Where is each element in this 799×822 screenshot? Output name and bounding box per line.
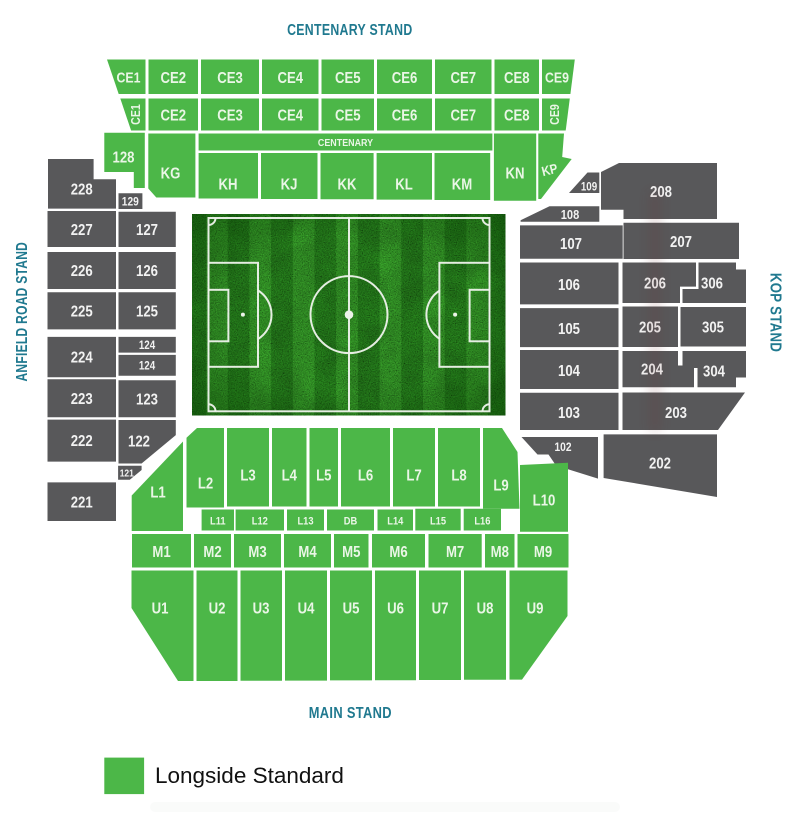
svg-text:304: 304	[703, 364, 725, 381]
svg-text:KH: KH	[218, 177, 237, 194]
svg-text:MAIN STAND: MAIN STAND	[309, 705, 392, 723]
svg-text:202: 202	[649, 456, 671, 473]
svg-text:126: 126	[136, 263, 158, 280]
svg-text:L7: L7	[406, 468, 421, 485]
svg-text:128: 128	[113, 150, 135, 167]
svg-text:124: 124	[139, 360, 155, 373]
svg-text:127: 127	[136, 222, 158, 239]
svg-text:105: 105	[558, 321, 580, 338]
svg-text:122: 122	[128, 434, 150, 451]
svg-text:L10: L10	[533, 493, 556, 510]
svg-text:CE8: CE8	[504, 70, 530, 87]
svg-text:228: 228	[71, 182, 93, 199]
svg-text:CENTENARY: CENTENARY	[318, 137, 374, 149]
svg-text:CE2: CE2	[160, 70, 186, 87]
svg-text:U3: U3	[253, 601, 270, 618]
svg-text:L6: L6	[358, 468, 373, 485]
svg-text:L2: L2	[198, 476, 213, 493]
svg-text:CE6: CE6	[392, 108, 418, 125]
svg-text:207: 207	[670, 234, 692, 251]
svg-text:L12: L12	[252, 516, 268, 528]
svg-text:CE1: CE1	[129, 104, 143, 125]
svg-text:L9: L9	[493, 478, 508, 495]
svg-text:KK: KK	[337, 177, 357, 194]
svg-text:129: 129	[122, 196, 139, 209]
svg-text:DB: DB	[344, 516, 357, 528]
svg-text:KN: KN	[505, 166, 524, 183]
svg-text:102: 102	[554, 441, 571, 454]
svg-text:106: 106	[558, 277, 580, 294]
svg-text:M1: M1	[152, 544, 170, 561]
svg-text:CE4: CE4	[277, 108, 303, 125]
svg-text:L11: L11	[210, 516, 226, 528]
svg-text:M6: M6	[389, 544, 407, 561]
svg-text:M3: M3	[248, 544, 266, 561]
svg-text:125: 125	[136, 303, 158, 320]
svg-text:203: 203	[665, 405, 687, 422]
svg-text:CE3: CE3	[217, 70, 243, 87]
svg-text:M7: M7	[446, 544, 464, 561]
svg-text:CE1: CE1	[117, 70, 141, 86]
svg-text:M5: M5	[342, 544, 360, 561]
svg-text:109: 109	[581, 181, 597, 194]
svg-text:KM: KM	[452, 177, 472, 194]
svg-text:L1: L1	[150, 485, 165, 502]
svg-text:CE4: CE4	[277, 70, 303, 87]
svg-text:U7: U7	[432, 601, 449, 618]
svg-text:107: 107	[560, 236, 582, 253]
svg-text:U9: U9	[527, 601, 544, 618]
svg-text:L5: L5	[316, 468, 331, 485]
svg-text:104: 104	[558, 363, 580, 380]
svg-text:CE7: CE7	[450, 70, 476, 87]
svg-text:124: 124	[139, 339, 155, 352]
svg-text:CE5: CE5	[335, 108, 361, 125]
svg-text:KG: KG	[161, 166, 181, 183]
svg-text:103: 103	[558, 405, 580, 422]
svg-text:L3: L3	[240, 468, 255, 485]
svg-text:CE5: CE5	[335, 70, 361, 87]
svg-text:M8: M8	[491, 544, 509, 561]
svg-text:CE3: CE3	[217, 108, 243, 125]
svg-text:CE9: CE9	[545, 70, 569, 86]
svg-text:L15: L15	[430, 516, 446, 528]
svg-text:KL: KL	[395, 177, 413, 194]
svg-text:222: 222	[71, 433, 93, 450]
svg-text:ANFIELD ROAD STAND: ANFIELD ROAD STAND	[12, 242, 30, 382]
svg-text:306: 306	[701, 276, 723, 293]
svg-text:L13: L13	[297, 516, 313, 528]
svg-text:L14: L14	[387, 516, 403, 528]
svg-text:121: 121	[120, 468, 134, 479]
svg-text:CE9: CE9	[548, 104, 562, 125]
svg-text:223: 223	[71, 391, 93, 408]
svg-text:CE8: CE8	[504, 108, 530, 125]
svg-text:123: 123	[136, 391, 158, 408]
svg-text:M4: M4	[298, 544, 316, 561]
svg-text:M2: M2	[203, 544, 221, 561]
svg-text:M9: M9	[534, 544, 552, 561]
svg-text:L4: L4	[282, 468, 297, 485]
svg-text:U1: U1	[152, 601, 169, 618]
svg-text:305: 305	[702, 320, 724, 337]
svg-text:224: 224	[71, 350, 93, 367]
svg-text:U8: U8	[477, 601, 494, 618]
svg-text:CE2: CE2	[160, 108, 186, 125]
svg-text:CE6: CE6	[392, 70, 418, 87]
svg-text:221: 221	[71, 494, 93, 511]
svg-text:KJ: KJ	[281, 177, 298, 194]
svg-text:CE7: CE7	[450, 108, 476, 125]
svg-text:U6: U6	[387, 601, 404, 618]
svg-text:Longside Standard: Longside Standard	[155, 763, 344, 788]
svg-text:U5: U5	[343, 601, 360, 618]
svg-text:U4: U4	[298, 601, 315, 618]
svg-text:L16: L16	[474, 516, 490, 528]
svg-text:226: 226	[71, 263, 93, 280]
svg-text:108: 108	[561, 207, 580, 222]
svg-text:KOP STAND: KOP STAND	[766, 273, 783, 352]
svg-text:L8: L8	[451, 468, 466, 485]
svg-text:U2: U2	[209, 601, 226, 618]
svg-text:225: 225	[71, 303, 93, 320]
svg-text:227: 227	[71, 222, 93, 239]
svg-text:CENTENARY STAND: CENTENARY STAND	[287, 21, 412, 39]
